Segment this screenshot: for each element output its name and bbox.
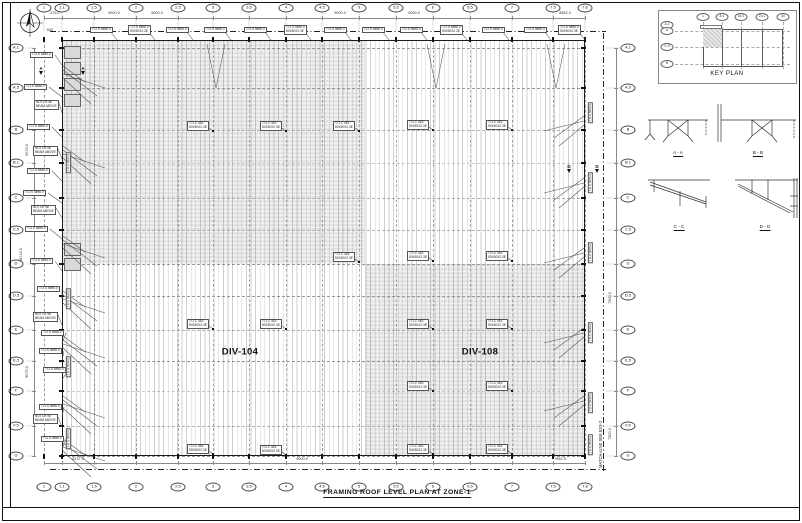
dim-tick [433, 461, 434, 465]
grid-bubble: 7.8 [578, 483, 593, 492]
edge-note-callout: NOTCH W/BEAM ABOVE [33, 414, 58, 424]
grid-bubble: G [621, 452, 636, 461]
edge-note-callout: T.O.S 5896.0 [43, 367, 66, 373]
grid-bubble: B.1 [621, 159, 636, 168]
dim-tick [322, 16, 323, 20]
keyplan-grid-bubble: A [661, 27, 674, 35]
section-cut-marker: A [37, 66, 45, 75]
rotated-note-callout: T.O.S 5896.0 [588, 322, 593, 343]
dimension-label: 7962.5 [554, 457, 566, 461]
column-stub [64, 243, 81, 256]
column-mark [135, 454, 137, 459]
key-plan-zone-highlight [703, 29, 722, 47]
row-mark [59, 425, 64, 427]
column-mark [321, 454, 323, 459]
keyplan-grid-bubble: 8.1 [716, 13, 729, 21]
row-mark [581, 295, 586, 297]
zone-boundary-bottom [50, 469, 606, 470]
grid-bubble: C.5 [621, 226, 636, 235]
row-mark [581, 162, 586, 164]
dim-tick [614, 391, 618, 392]
keyplan-grid-line [783, 22, 784, 69]
dimension-label: 9000.0 [408, 11, 420, 15]
elevation-callout: T.O.S 5896.0 [482, 27, 505, 33]
column-mark [469, 454, 471, 459]
elevation-callout: T.O.S 5896.0 [166, 27, 189, 33]
dim-tick [614, 230, 618, 231]
elevation-callout: T.O.S 5896.0 [90, 27, 113, 33]
frame-bottom-rule [2, 507, 799, 508]
column-mark [511, 37, 513, 42]
elevation-callout: T.O.S 5896.0 [362, 27, 385, 33]
grid-bubble: B [621, 126, 636, 135]
connection-dot [511, 390, 513, 392]
dim-tick [614, 296, 618, 297]
dim-tick [32, 48, 36, 49]
dim-tick [553, 461, 554, 465]
connection-dot [285, 454, 287, 456]
section-label-d: D - D [760, 224, 771, 231]
connection-dot [212, 130, 214, 132]
elevation-callout: T.O.S 5896.050X50X2.3E [128, 25, 151, 35]
member-callout: T.O.C 46350X50X2.3E [260, 445, 282, 455]
dim-tick [433, 16, 434, 20]
row-mark [581, 390, 586, 392]
grid-bubble: 2.5 [171, 4, 186, 13]
dimension-label: 9000.0 [296, 457, 308, 461]
grid-bubble: F [621, 387, 636, 396]
elevation-callout: T.O.S 5896.0 [244, 27, 267, 33]
rotated-note-callout: T.O.S 5896.0 [588, 172, 593, 193]
connection-dot [511, 453, 513, 455]
connection-dot [432, 390, 434, 392]
member-callout: T.O.C 46350X50X2.3E [260, 319, 282, 329]
rotated-note-callout: T.O.S 5896.0 [66, 356, 71, 377]
row-mark [581, 360, 586, 362]
dim-tick [286, 16, 287, 20]
row-mark [581, 229, 586, 231]
dim-tick [32, 361, 36, 362]
grid-bubble: C [621, 194, 636, 203]
plan-title: FRAMING ROOF LEVEL PLAN AT ZONE-1 [323, 489, 471, 498]
rotated-note-callout: T.O.S 5896.0 [588, 102, 593, 123]
connection-dot [511, 260, 513, 262]
column-mark [321, 37, 323, 42]
keyplan-grid-bubble: 1 [697, 13, 710, 21]
dim-tick [32, 330, 36, 331]
row-mark [59, 162, 64, 164]
grid-bubble: 3 [206, 483, 221, 492]
dim-tick [32, 391, 36, 392]
column-mark [61, 37, 63, 42]
dim-tick [396, 16, 397, 20]
dim-tick [249, 16, 250, 20]
connection-dot [432, 129, 434, 131]
row-mark [581, 129, 586, 131]
dimension-label: 375.0 [50, 11, 60, 15]
grid-bubble: 1.1 [55, 483, 70, 492]
edge-note-callout: T.O.S 5896.0 [41, 436, 64, 442]
dim-tick [614, 264, 618, 265]
dim-tick [94, 16, 95, 20]
key-plan-title: KEY PLAN [710, 71, 743, 77]
keyplan-building-line [741, 29, 742, 67]
edge-note-callout: NOTCH W/BEAM ABOVE [31, 205, 56, 215]
connection-dot [212, 328, 214, 330]
section-label-b: B - B [753, 150, 763, 157]
elevation-callout: T.O.S 5896.0 [400, 27, 423, 33]
dim-tick [614, 426, 618, 427]
keyplan-grid-bubble: 23.1 [756, 13, 769, 21]
dim-tick [614, 48, 618, 49]
dimension-label: 9075.0 [25, 144, 29, 156]
dim-tick [32, 296, 36, 297]
grid-bubble: 5.5 [389, 4, 404, 13]
member-callout: T.O.C 46350X50X2.3E [407, 381, 429, 391]
dimension-label: 7900.0 [608, 428, 612, 440]
keyplan-grid-bubble: C.5 [661, 43, 674, 51]
dim-line-bottom [44, 463, 585, 464]
dimension-label: 7900.0 [608, 292, 612, 304]
dim-tick [553, 16, 554, 20]
dim-tick [32, 426, 36, 427]
column-mark [395, 454, 397, 459]
connection-dot [432, 328, 434, 330]
column-mark [395, 37, 397, 42]
grid-bubble: 3 [206, 4, 221, 13]
elevation-callout: T.O.S 5896.0 [204, 27, 227, 33]
grid-bubble: 1.5 [87, 483, 102, 492]
connection-dot [285, 328, 287, 330]
dim-tick [136, 16, 137, 20]
dim-tick [359, 16, 360, 20]
member-callout: T.O.C 46350X50X2.3E [260, 121, 282, 131]
grid-bubble: 5 [352, 4, 367, 13]
row-mark [59, 360, 64, 362]
column-mark [135, 37, 137, 42]
dimension-label: 9075.0 [25, 366, 29, 378]
grid-bubble: D [621, 260, 636, 269]
column-mark [552, 37, 554, 42]
grid-line-h [62, 456, 585, 457]
dim-tick [32, 198, 36, 199]
dim-tick [585, 16, 586, 20]
column-mark [93, 454, 95, 459]
grid-bubble: A.5 [621, 84, 636, 93]
drawing-sheet: MATCH-LINE SEE E03-2 DIV-104 DIV-108 FRA… [0, 0, 802, 523]
member-callout: T.O.C 46350X50X2.3E [333, 252, 355, 262]
grid-bubble: 1 [37, 483, 52, 492]
row-mark [581, 197, 586, 199]
dimension-label: 9000.0 [108, 11, 120, 15]
row-mark [581, 47, 586, 49]
grid-bubble: 2 [129, 4, 144, 13]
section-detail-sketches [640, 96, 802, 236]
dim-tick [213, 16, 214, 20]
dim-tick [614, 361, 618, 362]
zone-label-div-108: DIV-108 [462, 347, 498, 358]
building-outline [62, 40, 585, 456]
connection-dot [358, 130, 360, 132]
dim-tick [213, 461, 214, 465]
dimension-label: 600 [47, 28, 53, 32]
edge-note-callout: T.O.S 5896.0 [27, 124, 50, 130]
edge-note-callout: T.O.S 5896.0 [27, 168, 50, 174]
column-mark [285, 37, 287, 42]
grid-bubble: 3.5 [242, 4, 257, 13]
row-mark [59, 295, 64, 297]
grid-bubble: 6 [426, 4, 441, 13]
dim-tick [62, 461, 63, 465]
member-callout: T.O.C 46350X50X2.3E [407, 444, 429, 454]
column-mark [43, 454, 45, 459]
connection-dot [358, 261, 360, 263]
grid-bubble: 2.5 [171, 483, 186, 492]
matchline [603, 31, 604, 471]
section-cut-marker: D [593, 164, 601, 173]
dim-tick [136, 461, 137, 465]
dim-tick [178, 461, 179, 465]
keyplan-building-line [762, 29, 763, 67]
section-label-a: A - A [673, 150, 683, 157]
column-mark [432, 37, 434, 42]
dimension-label: 8137.5 [72, 457, 84, 461]
dim-tick [470, 16, 471, 20]
grid-bubble: E.5 [621, 357, 636, 366]
rotated-note-callout: T.O.S 5896.0 [588, 392, 593, 413]
column-mark [177, 454, 179, 459]
section-label-c: C - C [674, 224, 685, 231]
column-mark [212, 37, 214, 42]
elevation-callout: T.O.S 5896.050X50X2.3E [440, 25, 463, 35]
member-callout: T.O.C 46350X50X2.3E [486, 381, 508, 391]
member-callout: T.O.C 46350X50X2.3E [187, 444, 209, 454]
row-mark [59, 197, 64, 199]
edge-note-callout: T.O.S 5896.0 [39, 404, 62, 410]
edge-note-callout: T.O.S 5896.0 [23, 190, 46, 196]
dim-tick [614, 456, 618, 457]
row-mark [581, 329, 586, 331]
keyplan-building-line [722, 29, 723, 67]
column-mark [584, 37, 586, 42]
grid-bubble: 1.5 [87, 4, 102, 13]
dim-tick [614, 88, 618, 89]
edge-note-callout: T.O.S 5896.0 [25, 226, 48, 232]
elevation-callout: T.O.S 5896.0 [324, 27, 347, 33]
dimension-label: 9000.0 [334, 11, 346, 15]
column-mark [248, 37, 250, 42]
dim-tick [322, 461, 323, 465]
column-mark [469, 37, 471, 42]
row-mark [59, 129, 64, 131]
member-callout: T.O.C 46350X50X2.3E [486, 120, 508, 130]
dim-tick [178, 16, 179, 20]
dimension-label: 9000.0 [151, 11, 163, 15]
dim-tick [614, 330, 618, 331]
column-stub [64, 258, 81, 271]
dim-tick [614, 163, 618, 164]
dim-line-right [616, 48, 617, 456]
member-callout: T.O.C 46350X50X2.3E [407, 120, 429, 130]
dim-tick [94, 461, 95, 465]
dim-tick [62, 16, 63, 20]
section-cut-marker: A [79, 66, 87, 75]
dim-tick [44, 461, 45, 465]
column-mark [43, 37, 45, 42]
row-mark [581, 455, 586, 457]
grid-bubble: 4 [279, 4, 294, 13]
edge-note-callout: T.O.S 5896.0 [37, 286, 60, 292]
column-mark [177, 37, 179, 42]
dim-tick [614, 198, 618, 199]
dim-tick [512, 461, 513, 465]
rotated-note-callout: T.O.S 5896.0 [588, 242, 593, 263]
member-callout: T.O.C 46350X50X2.3E [486, 319, 508, 329]
edge-note-callout: NOTCH W/BEAM ABOVE [33, 146, 58, 156]
dim-tick [286, 461, 287, 465]
row-mark [59, 229, 64, 231]
zone-label-div-104: DIV-104 [222, 347, 258, 358]
dim-tick [396, 461, 397, 465]
dim-tick [614, 130, 618, 131]
grid-line-v [585, 40, 586, 456]
elevation-callout: T.O.S 5896.0 [524, 27, 547, 33]
dimension-label: 48742.0 [19, 248, 23, 262]
dimension-label: 8362.0 [559, 11, 571, 15]
elevation-callout: T.O.S 5896.050X50X2.3E [284, 25, 307, 35]
dim-tick [32, 163, 36, 164]
grid-bubble: 6.5 [463, 4, 478, 13]
elevation-callout: T.O.S 5896.050X50X2.3E [558, 25, 581, 35]
section-cut-marker: D [565, 164, 573, 173]
frame-inner-left [10, 2, 11, 507]
grid-bubble: 7.8 [578, 4, 593, 13]
member-callout: T.O.C 46350X50X2.3E [187, 319, 209, 329]
column-mark [358, 37, 360, 42]
keyplan-grid-bubble: 30 [777, 13, 790, 21]
dim-tick [470, 461, 471, 465]
grid-bubble: F.5 [621, 422, 636, 431]
column-mark [93, 37, 95, 42]
grid-bubble: A.1 [621, 44, 636, 53]
matchline-label: MATCH-LINE SEE E03-2 [598, 358, 603, 468]
connection-dot [432, 453, 434, 455]
column-mark [248, 454, 250, 459]
grid-bubble: 3.5 [242, 483, 257, 492]
edge-note-callout: NOTCH W/BEAM ABOVE [33, 312, 58, 322]
rotated-note-callout: T.O.S 5896.0 [66, 288, 71, 309]
connection-dot [511, 129, 513, 131]
dim-tick [44, 16, 45, 20]
grid-bubble: 7 [505, 4, 520, 13]
row-mark [581, 425, 586, 427]
connection-dot [432, 260, 434, 262]
column-stub [64, 46, 81, 59]
dim-tick [32, 456, 36, 457]
grid-bubble: 7.5 [546, 483, 561, 492]
connection-dot [212, 453, 214, 455]
rotated-note-callout: T.O.S 5896.0 [66, 428, 71, 449]
connection-dot [511, 328, 513, 330]
row-mark [581, 263, 586, 265]
dim-tick [359, 461, 360, 465]
edge-note-callout: NOTCH W/BEAM ABOVE [34, 100, 59, 110]
edge-note-callout: T.O.S 5896.0 [30, 258, 53, 264]
rotated-note-callout: T.O.S 5896.0 [66, 152, 71, 173]
grid-bubble: E [621, 326, 636, 335]
keyplan-grid-bubble: N [661, 60, 674, 68]
edge-note-callout: T.O.S 5896.0 [41, 330, 64, 336]
keyplan-grid-bubble: 16.1 [735, 13, 748, 21]
row-mark [59, 455, 64, 457]
dim-line-top [44, 18, 585, 19]
column-stub [64, 78, 81, 91]
grid-bubble: 7 [505, 483, 520, 492]
row-mark [59, 390, 64, 392]
edge-note-callout: T.O.S 5896.0 [30, 52, 53, 58]
row-mark [581, 87, 586, 89]
member-callout: T.O.C 46350X50X2.3E [407, 251, 429, 261]
rotated-note-callout: T.O.S 5896.0 [588, 434, 593, 455]
member-callout: T.O.C 46350X50X2.3E [486, 251, 508, 261]
member-callout: T.O.C 46350X50X2.3E [407, 319, 429, 329]
edge-note-callout: T.O.S 5896.0 [24, 84, 47, 90]
member-callout: T.O.C 46350X50X2.3E [187, 121, 209, 131]
dim-tick [585, 461, 586, 465]
grid-bubble: 2 [129, 483, 144, 492]
connection-dot [285, 130, 287, 132]
dim-tick [512, 16, 513, 20]
column-stub [64, 94, 81, 107]
grid-bubble: 4 [279, 483, 294, 492]
grid-bubble: 4.5 [315, 4, 330, 13]
grid-bubble: D.5 [621, 292, 636, 301]
member-callout: T.O.C 46350X50X2.3E [333, 121, 355, 131]
edge-note-callout: T.O.S 5896.0 [39, 348, 62, 354]
member-callout: T.O.C 46350X50X2.3E [486, 444, 508, 454]
dim-tick [249, 461, 250, 465]
column-mark [358, 454, 360, 459]
